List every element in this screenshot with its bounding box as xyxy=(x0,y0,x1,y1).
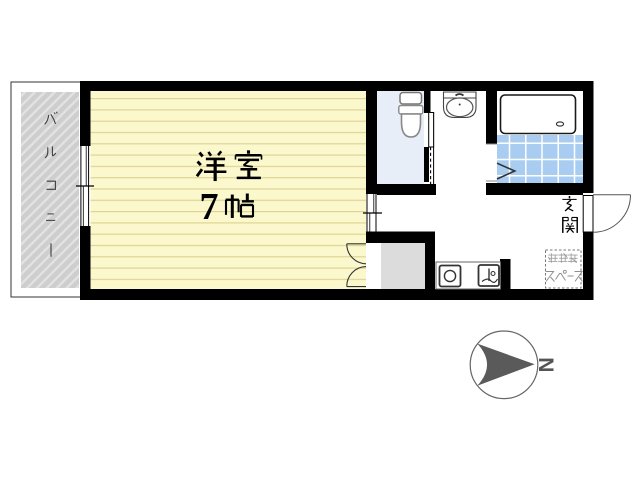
svg-text:N: N xyxy=(534,357,557,372)
svg-text:7: 7 xyxy=(200,186,219,228)
